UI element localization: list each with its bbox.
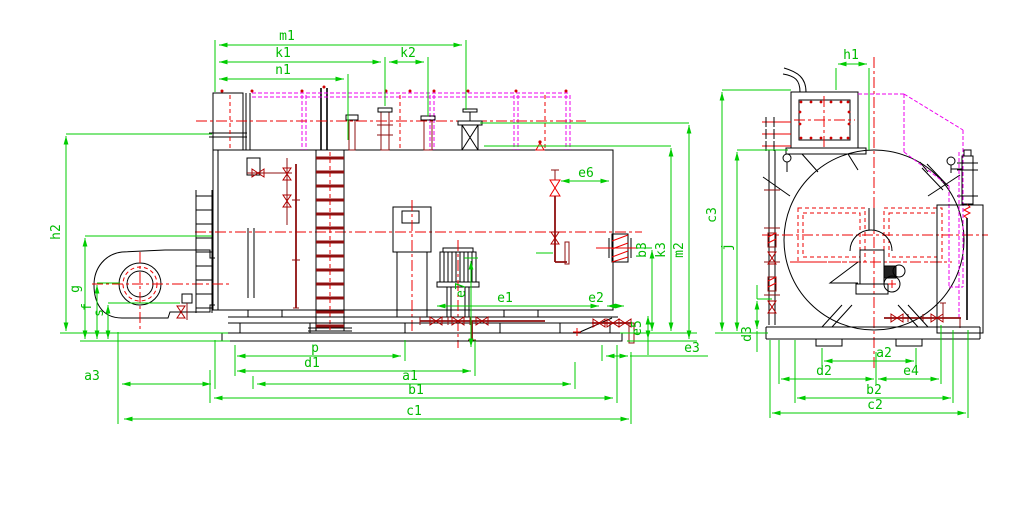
side-view-dimensions: m1 k1 k2 n1 e6 e1 e2 p d1 a1 b1 c1 a3 e3… <box>49 29 708 424</box>
dim-label-e5: e5 <box>630 320 645 336</box>
dim-label-h2: h2 <box>49 224 64 240</box>
dim-label-b3: b3 <box>635 242 650 258</box>
dim-label-m1: m1 <box>279 29 295 44</box>
boiler-shell <box>195 150 642 310</box>
bottom-piping <box>420 317 634 343</box>
water-level-gauge <box>247 158 300 308</box>
dim-label-e6: e6 <box>578 166 594 181</box>
gauge-glass <box>920 150 983 333</box>
end-bottom-piping <box>884 303 961 328</box>
small-deck-valve <box>536 140 544 150</box>
valve-deck <box>196 86 586 151</box>
dim-label-k2: k2 <box>400 46 416 61</box>
dim-label-m2: m2 <box>672 242 687 258</box>
shell-end <box>762 57 988 368</box>
deck-bolt-dots <box>221 86 568 93</box>
dim-label-g: g <box>68 285 83 293</box>
dim-label-n1: n1 <box>275 63 291 78</box>
dim-label-h1: h1 <box>843 48 859 63</box>
dim-label-b2: b2 <box>866 383 882 398</box>
dim-label-e4: e4 <box>903 364 919 379</box>
end-base <box>766 305 980 346</box>
dim-label-d2: d2 <box>816 364 832 379</box>
dim-label-c3: c3 <box>705 207 720 223</box>
end-view-dimensions: h1 c3 j d3 a2 d2 e4 b2 c2 <box>705 48 968 418</box>
rear-burner <box>830 208 905 294</box>
drawing-canvas: m1 k1 k2 n1 e6 e1 e2 p d1 a1 b1 c1 a3 e3… <box>0 0 1011 520</box>
dim-label-e2: e2 <box>588 291 604 306</box>
dim-label-e1: e1 <box>497 291 513 306</box>
boiler-ga-drawing: m1 k1 k2 n1 e6 e1 e2 p d1 a1 b1 c1 a3 e3… <box>0 0 1011 520</box>
dim-label-c2: c2 <box>867 398 883 413</box>
dim-label-p: p <box>311 341 319 356</box>
dim-label-e7: e7 <box>454 282 469 298</box>
dim-label-a3: a3 <box>84 369 100 384</box>
dim-label-b1: b1 <box>408 383 424 398</box>
dim-label-d1: d1 <box>304 356 320 371</box>
dim-label-k3: k3 <box>654 242 669 258</box>
main-steam-valve <box>458 109 482 150</box>
deck-valve-2 <box>377 108 393 150</box>
dim-label-c1: c1 <box>406 404 422 419</box>
side-view: m1 k1 k2 n1 e6 e1 e2 p d1 a1 b1 c1 a3 e3… <box>49 29 708 424</box>
fuel-valve <box>177 294 192 320</box>
access-ladder <box>308 150 352 331</box>
base-skid <box>222 310 622 341</box>
dim-label-s: s <box>92 309 107 317</box>
burner <box>92 228 254 330</box>
front-ladder <box>196 190 212 313</box>
dim-label-a2: a2 <box>876 346 892 361</box>
control-cabinet <box>393 200 431 332</box>
dim-label-e3: e3 <box>684 341 700 356</box>
end-view: h1 c3 j d3 a2 d2 e4 b2 c2 <box>705 48 988 418</box>
dim-label-a1: a1 <box>402 369 418 384</box>
dim-label-j: j <box>720 243 735 251</box>
smoke-box <box>783 68 866 172</box>
dim-label-k1: k1 <box>275 46 291 61</box>
dosing-valve <box>550 170 569 264</box>
dim-label-d3: d3 <box>740 326 755 342</box>
